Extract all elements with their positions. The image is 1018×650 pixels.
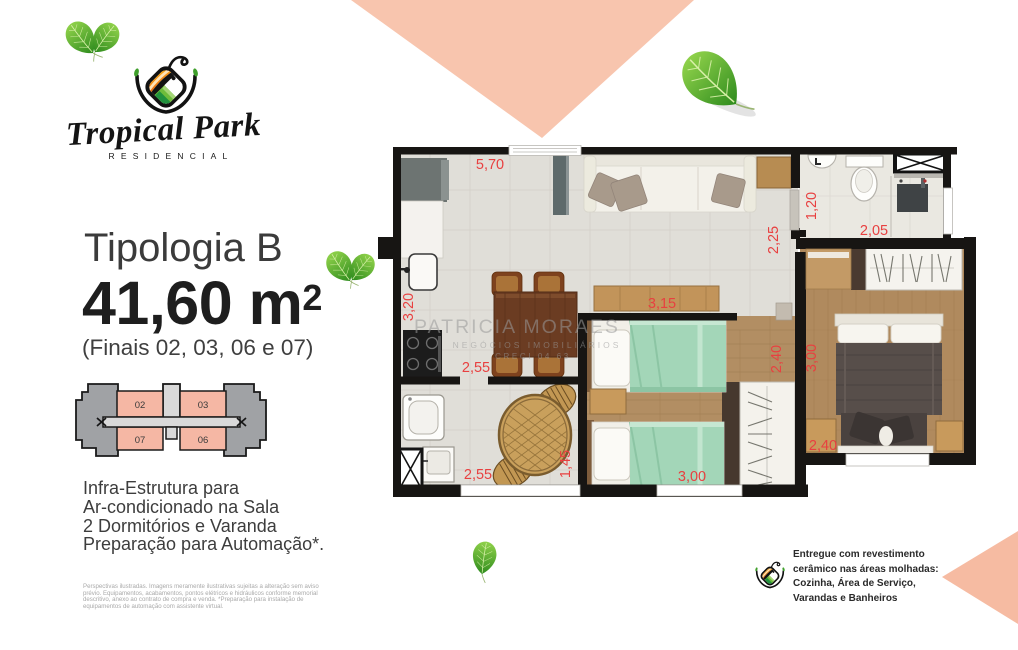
svg-text:2,55: 2,55 [462,360,490,376]
svg-text:3,20: 3,20 [401,293,417,321]
svg-text:2,05: 2,05 [860,223,888,239]
svg-text:3,00: 3,00 [804,344,820,372]
svg-text:5,70: 5,70 [476,157,504,173]
svg-text:PATRICIA MORAES: PATRICIA MORAES [414,316,620,338]
svg-text:2,55: 2,55 [464,467,492,483]
svg-text:1,20: 1,20 [804,192,820,220]
svg-text:2,25: 2,25 [766,226,782,254]
svg-text:1,45: 1,45 [558,450,574,478]
svg-text:NEGÓCIOS IMOBILIÁRIOS: NEGÓCIOS IMOBILIÁRIOS [453,340,622,350]
svg-text:2,40: 2,40 [809,438,837,454]
svg-text:2,40: 2,40 [769,345,785,373]
svg-text:3,15: 3,15 [648,296,676,312]
svg-text:CRECI 04 63: CRECI 04 63 [495,352,571,361]
svg-text:3,00: 3,00 [678,469,706,485]
